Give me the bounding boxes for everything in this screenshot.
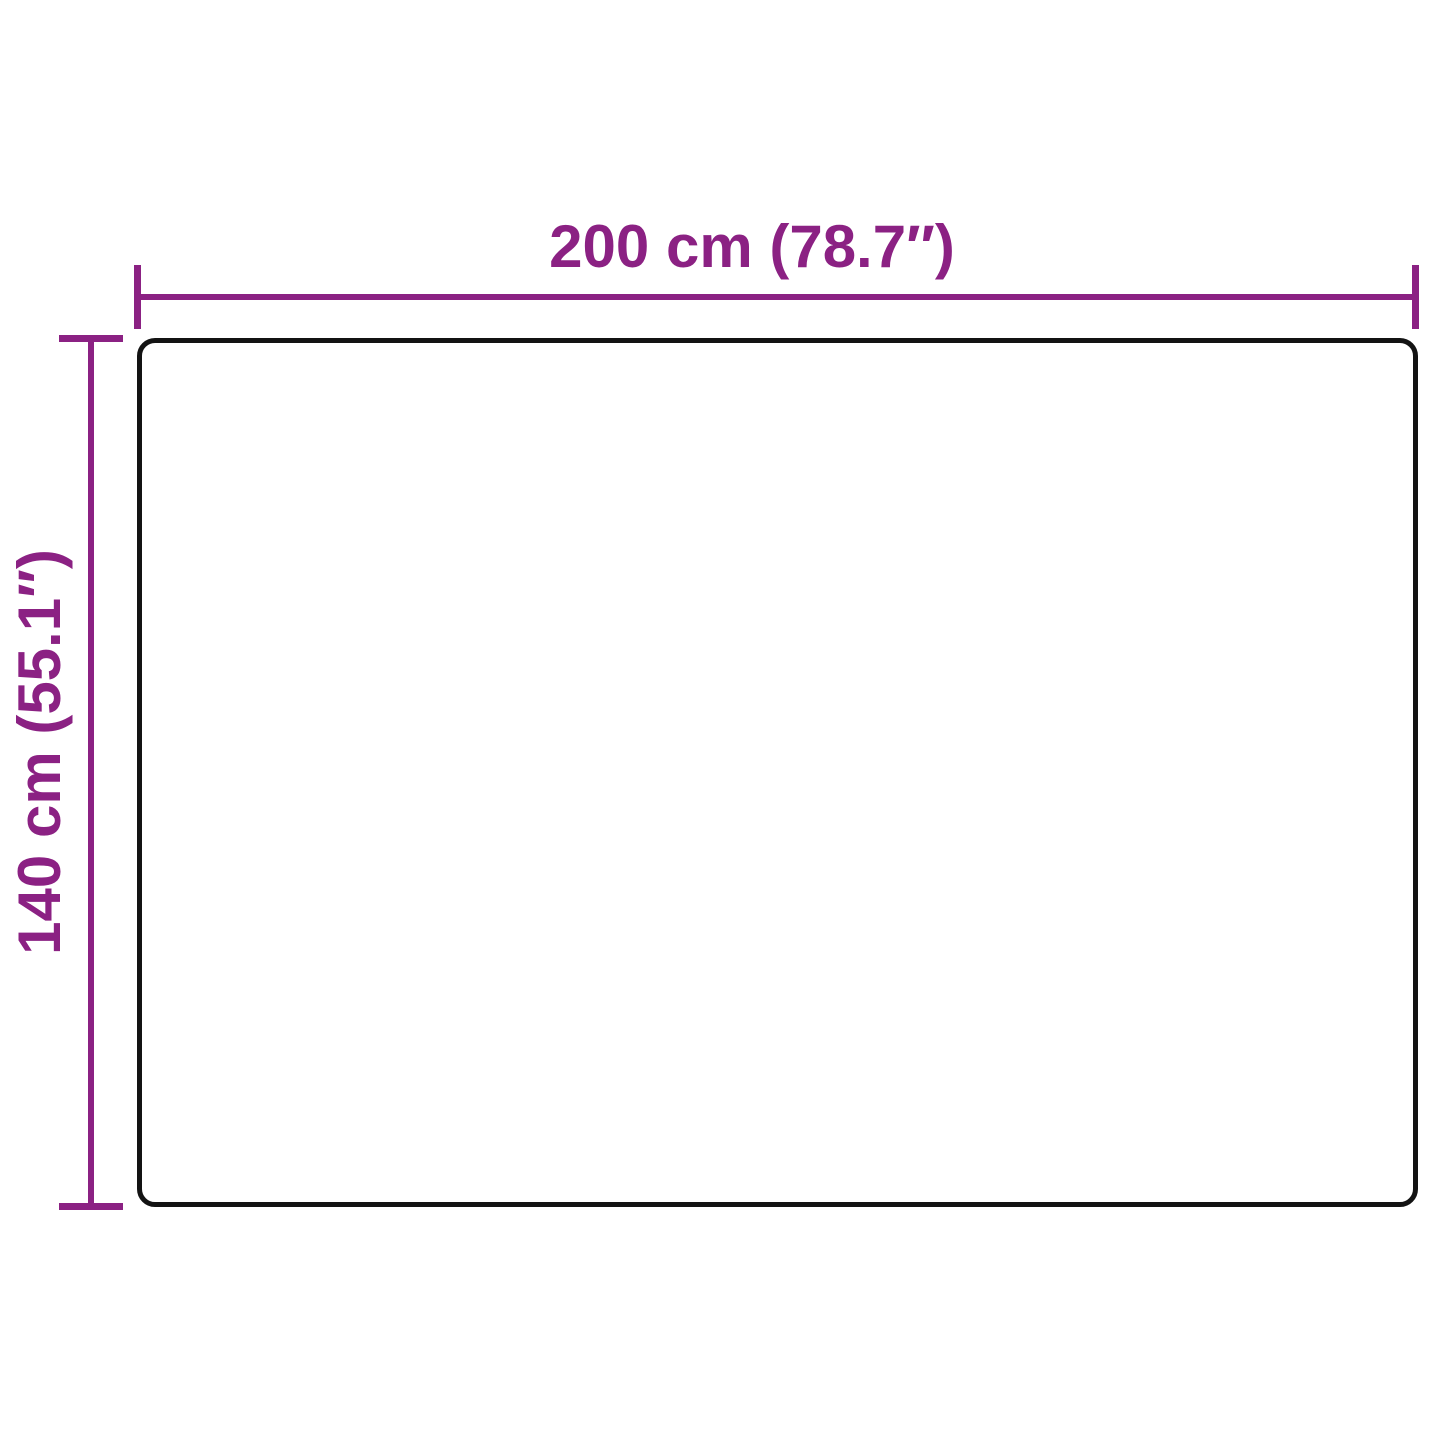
width-dimension-line bbox=[137, 294, 1418, 300]
width-dimension-label: 200 cm (78.7″) bbox=[549, 217, 955, 277]
height-dimension-top-tick bbox=[59, 335, 123, 342]
width-dimension-left-tick bbox=[134, 265, 141, 329]
product-outline-rectangle bbox=[137, 338, 1418, 1207]
dimension-diagram: 200 cm (78.7″) 140 cm (55.1″) bbox=[0, 0, 1445, 1445]
height-dimension-bottom-tick bbox=[59, 1203, 123, 1210]
height-dimension-line bbox=[88, 338, 94, 1207]
width-dimension-right-tick bbox=[1412, 265, 1419, 329]
height-dimension-label: 140 cm (55.1″) bbox=[10, 549, 70, 955]
